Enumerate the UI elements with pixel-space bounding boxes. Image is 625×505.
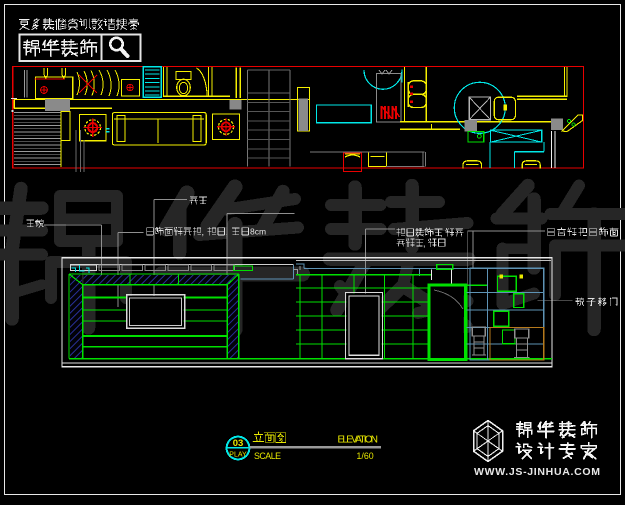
svg-text:SCALE: SCALE	[254, 451, 281, 461]
svg-text:1/60: 1/60	[357, 451, 374, 461]
svg-text:ELEVATION: ELEVATION	[338, 435, 379, 446]
svg-text:PLAY: PLAY	[229, 452, 247, 459]
svg-text:,: ,	[440, 228, 443, 238]
svg-text:WWW.JS-JINHUA.COM: WWW.JS-JINHUA.COM	[474, 466, 600, 478]
svg-text:03: 03	[233, 438, 244, 449]
svg-text:,: ,	[423, 238, 426, 248]
svg-text:8cm: 8cm	[250, 227, 266, 237]
svg-text:,: ,	[202, 227, 205, 237]
